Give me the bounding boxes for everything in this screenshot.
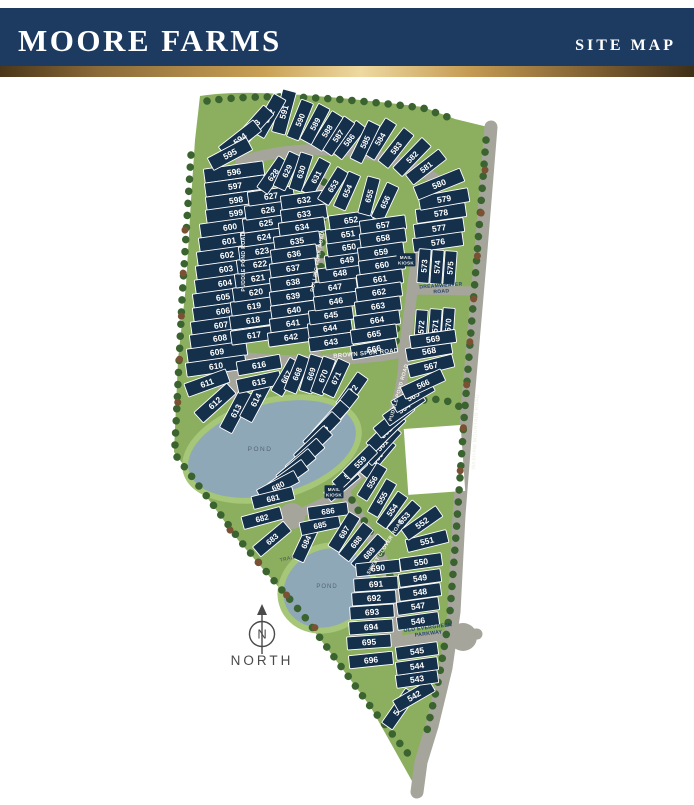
gold-divider xyxy=(0,66,694,77)
lot-number: 618 xyxy=(245,314,261,326)
lot-number: 692 xyxy=(367,592,382,603)
lot-number: 662 xyxy=(371,286,387,298)
lot-number: 663 xyxy=(370,300,386,312)
lot-number: 602 xyxy=(219,249,235,261)
lot-number: 605 xyxy=(215,291,231,303)
lot-number: 544 xyxy=(409,660,425,672)
lot-number: 657 xyxy=(375,219,391,231)
lot-number: 632 xyxy=(296,194,312,206)
lot-number: 693 xyxy=(365,606,380,617)
page-title: MOORE FARMS xyxy=(18,23,282,59)
lot-number: 691 xyxy=(369,578,384,589)
lot-number: 645 xyxy=(323,309,339,321)
compass-letter: N xyxy=(257,627,266,642)
lot-694[interactable]: 694 xyxy=(349,619,394,635)
pond-label-2: POND xyxy=(316,584,337,590)
lot-number: 658 xyxy=(375,232,391,244)
lot-number: 664 xyxy=(369,314,385,326)
lot-number: 549 xyxy=(412,572,428,584)
lot-number: 639 xyxy=(285,290,301,302)
lot-number: 601 xyxy=(221,235,237,247)
lot-number: 548 xyxy=(412,586,428,598)
mail-kiosk-label-1: MAILKIOSK xyxy=(397,253,416,266)
lot-number: 604 xyxy=(217,277,233,289)
lot-number: 573 xyxy=(420,259,430,273)
lot-number: 621 xyxy=(250,272,266,284)
lot-574[interactable]: 574 xyxy=(430,250,444,285)
excluded-parcel xyxy=(404,425,465,495)
lot-number: 643 xyxy=(323,336,339,348)
lot-number: 574 xyxy=(433,260,443,274)
lot-575[interactable]: 575 xyxy=(443,251,457,286)
lot-number: 637 xyxy=(285,262,301,274)
lot-number: 644 xyxy=(322,322,338,334)
lot-number: 596 xyxy=(226,166,242,178)
lot-number: 659 xyxy=(373,246,389,258)
lot-number: 543 xyxy=(409,673,425,685)
lot-number: 695 xyxy=(362,636,377,647)
lot-number: 606 xyxy=(215,305,231,317)
lot-number: 575 xyxy=(446,261,456,275)
lot-number: 623 xyxy=(254,245,270,257)
lot-number: 633 xyxy=(296,208,312,220)
lot-573[interactable]: 573 xyxy=(417,249,431,284)
lot-number: 545 xyxy=(409,645,425,657)
lot-number: 569 xyxy=(425,333,441,345)
lot-number: 650 xyxy=(341,241,357,253)
mail-kiosk-label-2: MAILKIOSK xyxy=(325,485,344,498)
svg-text:MAILKIOSK: MAILKIOSK xyxy=(326,487,342,497)
lot-number: 652 xyxy=(343,214,359,226)
lot-number: 641 xyxy=(285,317,301,329)
lot-number: 642 xyxy=(283,331,299,343)
lot-number: 599 xyxy=(228,207,244,219)
lot-number: 603 xyxy=(218,263,234,275)
lot-number: 572 xyxy=(417,320,427,334)
lot-number: 600 xyxy=(222,221,238,233)
lot-number: 622 xyxy=(252,258,268,270)
lot-number: 617 xyxy=(246,329,262,341)
road-label-puddle-pond-road: PUDDLE POND ROAD xyxy=(241,232,247,291)
compass-label: NORTH xyxy=(231,653,294,668)
junction-old-evergreen xyxy=(449,623,477,651)
lot-number: 577 xyxy=(431,222,447,234)
compass-arrowhead xyxy=(257,604,267,615)
lot-number: 660 xyxy=(374,259,390,271)
lot-number: 686 xyxy=(321,506,336,517)
lot-number: 651 xyxy=(340,228,356,240)
lot-number: 578 xyxy=(433,207,449,219)
lot-692[interactable]: 692 xyxy=(352,590,397,606)
lot-number: 607 xyxy=(213,319,229,331)
lot-number: 624 xyxy=(256,231,272,243)
page-subtitle: SITE MAP xyxy=(575,37,676,55)
lot-number: 625 xyxy=(258,217,274,229)
lot-number: 634 xyxy=(294,221,310,233)
page: 5965975985996006016026036046056066076086… xyxy=(0,0,694,805)
lot-number: 636 xyxy=(286,248,302,260)
lot-number: 571 xyxy=(431,319,441,333)
lot-number: 638 xyxy=(285,276,301,288)
svg-text:PUDDLE POND ROAD: PUDDLE POND ROAD xyxy=(241,232,247,291)
lot-number: 640 xyxy=(286,304,302,316)
svg-text:POND: POND xyxy=(248,446,273,453)
lot-693[interactable]: 693 xyxy=(350,604,395,620)
lot-number: 635 xyxy=(289,235,305,247)
site-map: 5965975985996006016026036046056066076086… xyxy=(0,0,694,805)
lot-number: 619 xyxy=(246,300,262,312)
lot-number: 694 xyxy=(364,621,379,632)
lot-number: 597 xyxy=(227,180,243,192)
lot-number: 620 xyxy=(248,286,264,298)
lot-number: 576 xyxy=(430,236,446,248)
pond-label-1: POND xyxy=(248,446,273,453)
lot-691[interactable]: 691 xyxy=(354,576,399,592)
lot-number: 626 xyxy=(260,204,276,216)
lot-number: 665 xyxy=(366,328,382,340)
lot-number: 547 xyxy=(410,600,426,612)
lot-number: 598 xyxy=(228,194,244,206)
lot-number: 646 xyxy=(328,295,344,307)
lot-695[interactable]: 695 xyxy=(347,634,392,650)
lot-number: 550 xyxy=(413,556,429,568)
header: MOORE FARMS SITE MAP xyxy=(0,8,694,66)
lot-number: 608 xyxy=(212,332,228,344)
lot-number: 649 xyxy=(339,254,355,266)
lot-number: 609 xyxy=(209,346,225,358)
svg-text:POND: POND xyxy=(316,584,337,590)
lot-number: 647 xyxy=(327,281,343,293)
lot-number: 696 xyxy=(363,654,378,665)
lot-number: 661 xyxy=(372,273,388,285)
svg-text:MAILKIOSK: MAILKIOSK xyxy=(398,255,414,265)
